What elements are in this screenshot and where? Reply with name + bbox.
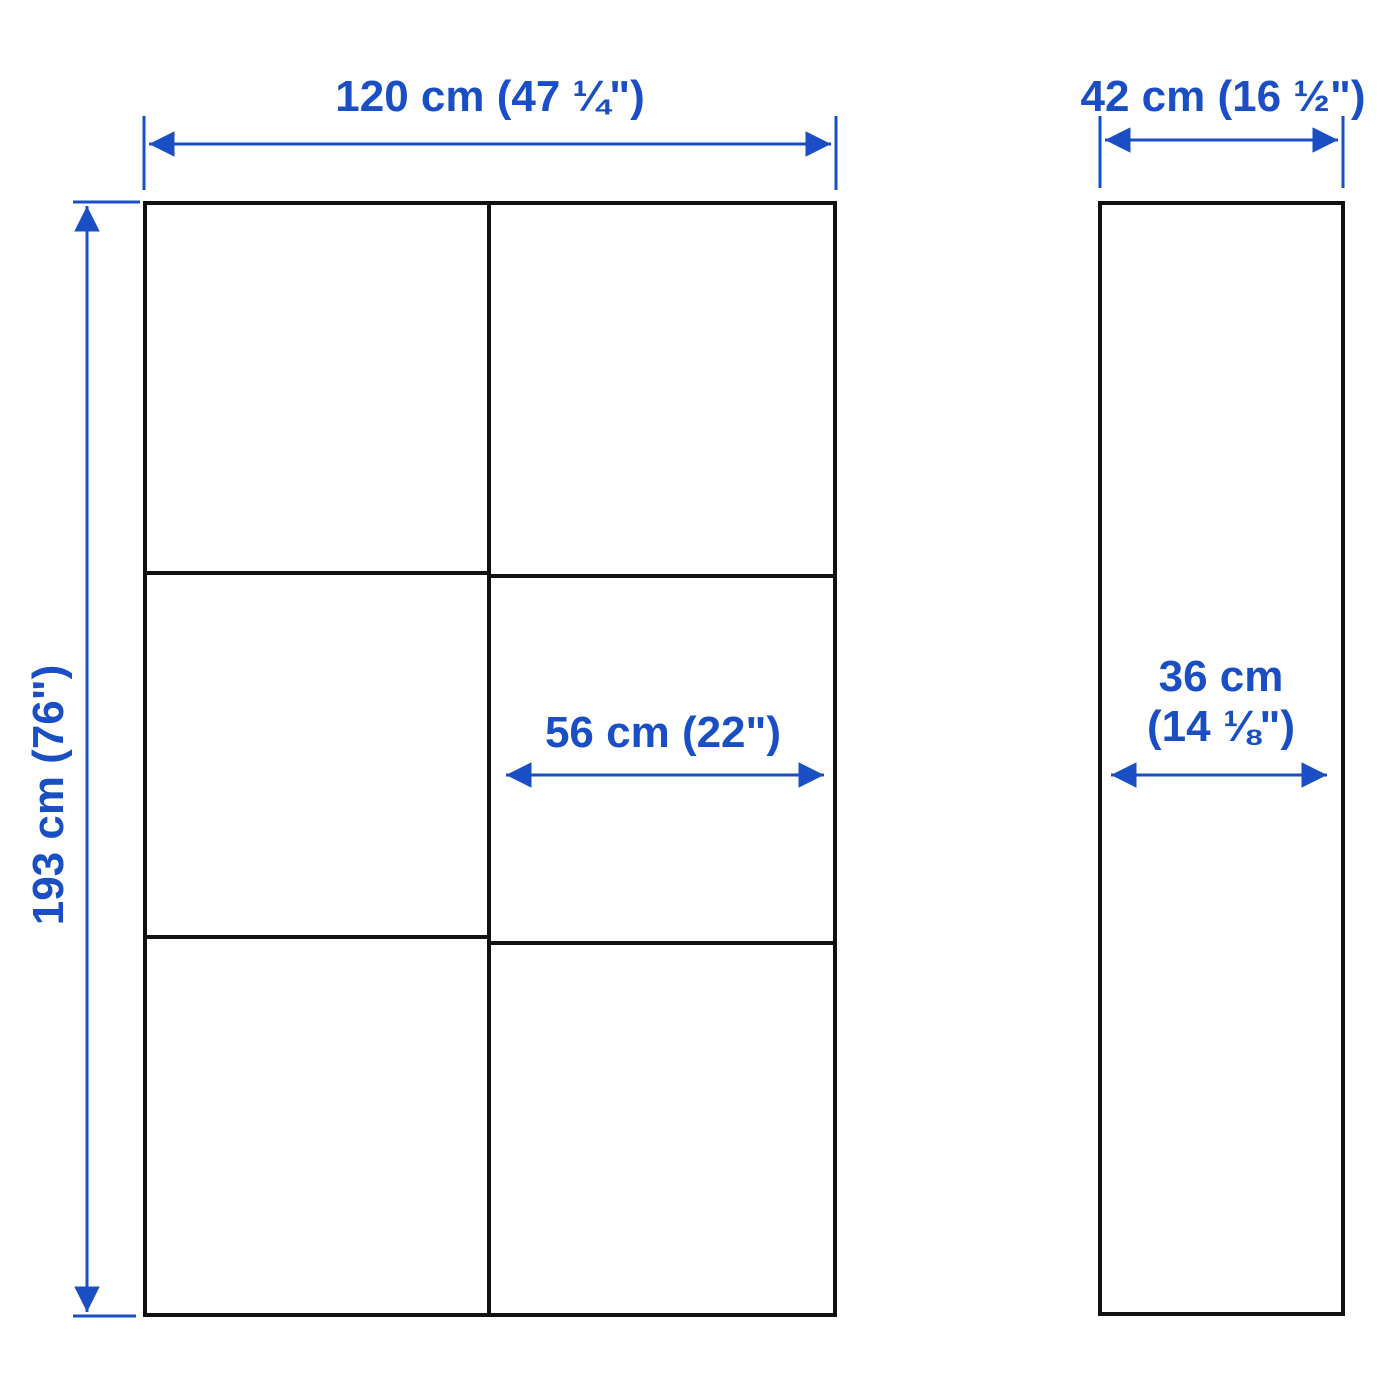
depth-dimension-label: 42 cm (16 ½") [1023,72,1400,123]
door-width-dimension-label: 56 cm (22") [489,708,837,759]
height-dimension-arrow [73,202,140,1316]
front-view-right-shelf-line-2 [489,941,835,945]
depth-dimension-arrow [1100,116,1343,188]
inner-depth-dimension-label: 36 cm (14 ⅛") [1041,652,1400,752]
front-view-left-shelf-line-2 [145,935,489,939]
inner-depth-label-line1: 36 cm [1041,652,1400,702]
width-dimension-arrow [144,116,836,190]
width-dimension-label: 120 cm (47 ¼") [143,72,837,123]
front-view-center-divider [487,201,491,1317]
inner-depth-label-line2: (14 ⅛") [1041,702,1400,752]
side-view-outline [1098,201,1345,1316]
dimension-diagram: 120 cm (47 ¼") 42 cm (16 ½") 193 cm (76"… [0,0,1400,1400]
height-dimension-label: 193 cm (76") [24,585,70,1005]
front-view-right-shelf-line-1 [489,574,835,578]
front-view-left-shelf-line-1 [145,571,489,575]
